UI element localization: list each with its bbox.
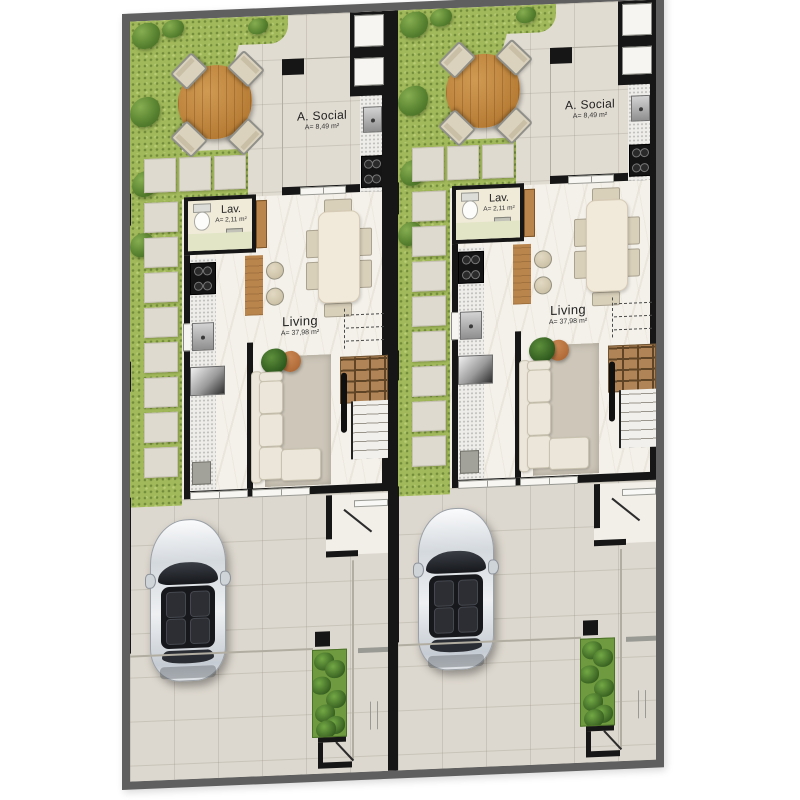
entry-door-leaf bbox=[354, 499, 388, 507]
paver-icon bbox=[144, 412, 178, 443]
stair-railing bbox=[609, 361, 615, 421]
staircase-lower bbox=[351, 400, 388, 460]
car-seat bbox=[458, 606, 478, 633]
leaf-icon bbox=[316, 720, 336, 738]
lav-room: Lav. A= 2,11 m² bbox=[452, 183, 524, 244]
paver-icon bbox=[179, 156, 211, 191]
gate-lines bbox=[370, 701, 378, 729]
paver-icon bbox=[412, 365, 446, 396]
cooktop-icon bbox=[190, 262, 216, 295]
car-mirror bbox=[413, 562, 424, 577]
cooktop-icon bbox=[458, 251, 484, 284]
paver-column bbox=[412, 191, 444, 478]
paver-icon bbox=[412, 435, 446, 466]
entry-door-leaf bbox=[622, 488, 656, 496]
car-rear-window bbox=[430, 638, 482, 653]
dining-table-icon bbox=[318, 210, 360, 304]
paver-icon bbox=[412, 400, 446, 431]
staircase-lower bbox=[619, 389, 656, 449]
laundry-sink-icon bbox=[631, 95, 650, 122]
party-wall bbox=[388, 10, 398, 770]
lav-door-leaf bbox=[524, 189, 535, 237]
living-room-label: Living A= 37,98 m² bbox=[250, 312, 350, 339]
leaf-icon bbox=[325, 660, 345, 679]
car-roof-glass bbox=[429, 574, 483, 638]
paver-icon bbox=[144, 272, 178, 303]
toilet-icon bbox=[462, 200, 478, 220]
service-cooktop-icon bbox=[361, 155, 384, 188]
car-seat bbox=[434, 580, 454, 607]
paver-icon bbox=[214, 155, 246, 190]
stair-railing bbox=[341, 373, 347, 433]
column bbox=[315, 631, 330, 647]
car-rear-window bbox=[162, 649, 214, 664]
paver-icon bbox=[144, 202, 178, 233]
car-seat bbox=[190, 590, 210, 617]
column bbox=[282, 58, 304, 75]
unit-1: A. Social A= 8,49 m² bbox=[130, 11, 388, 782]
appliance-icon bbox=[460, 450, 479, 474]
breakfast-bar bbox=[245, 255, 263, 316]
sofa-cushion bbox=[259, 413, 283, 447]
room-area: A= 2,11 m² bbox=[478, 204, 520, 213]
paver-row bbox=[398, 143, 516, 182]
car-seat bbox=[166, 591, 186, 618]
living-room-label: Living A= 37,98 m² bbox=[518, 301, 618, 328]
window bbox=[354, 14, 384, 47]
left-wall-segment bbox=[130, 362, 131, 392]
stair-void-dash bbox=[612, 297, 613, 337]
toilet-icon bbox=[194, 211, 210, 231]
car-roof-glass bbox=[161, 585, 215, 649]
sofa-cushion bbox=[527, 402, 551, 436]
social-room-label: A. Social A= 8,49 m² bbox=[548, 97, 632, 122]
sofa-cushion bbox=[259, 380, 283, 414]
dining-table-icon bbox=[586, 199, 628, 293]
lav-door-leaf bbox=[256, 200, 267, 248]
paver-row bbox=[130, 155, 248, 194]
paver-icon bbox=[447, 145, 479, 180]
service-cooktop-icon bbox=[629, 144, 652, 177]
floor-plan-canvas: A. Social A= 8,49 m² bbox=[0, 0, 800, 800]
paver-icon bbox=[412, 295, 446, 326]
entry-nook-wall bbox=[318, 743, 323, 765]
laundry-sink-icon bbox=[363, 106, 382, 133]
lav-room-label: Lav. A= 2,11 m² bbox=[478, 191, 520, 213]
site-plan-interior: A. Social A= 8,49 m² bbox=[130, 0, 656, 782]
sofa-cushion bbox=[527, 435, 551, 469]
paver-icon bbox=[144, 447, 178, 478]
paver-column bbox=[144, 202, 176, 489]
dining-chair-icon bbox=[358, 260, 372, 289]
car-seat bbox=[458, 579, 478, 606]
staircase-upper bbox=[608, 344, 656, 393]
window bbox=[354, 57, 384, 86]
lav-floor bbox=[188, 232, 252, 252]
left-wall-segment bbox=[130, 498, 131, 654]
car-windshield bbox=[158, 561, 218, 586]
paver-icon bbox=[412, 190, 446, 221]
sidewalk-line bbox=[620, 549, 622, 749]
car-windshield bbox=[426, 550, 486, 575]
paver-icon bbox=[144, 237, 178, 268]
staircase-upper bbox=[340, 355, 388, 404]
car-seat bbox=[190, 617, 210, 644]
car-icon bbox=[418, 506, 494, 671]
refrigerator-icon bbox=[190, 366, 225, 396]
planter-hedge bbox=[580, 637, 615, 726]
window bbox=[622, 3, 652, 36]
window bbox=[622, 46, 652, 75]
unit-2: A. Social A= 8,49 m² bbox=[398, 0, 656, 770]
dining-chair-icon bbox=[626, 216, 640, 245]
vestibule-wall bbox=[594, 484, 600, 528]
lav-room-label: Lav. A= 2,11 m² bbox=[210, 203, 252, 225]
car-icon bbox=[150, 518, 226, 683]
breakfast-bar bbox=[513, 244, 531, 305]
sofa-cushion bbox=[527, 369, 551, 403]
vestibule-wall bbox=[326, 495, 332, 539]
gate-lines bbox=[638, 690, 646, 718]
lav-room: Lav. A= 2,11 m² bbox=[184, 194, 256, 255]
left-wall-segment bbox=[130, 194, 131, 226]
lav-floor bbox=[456, 220, 520, 240]
kitchen-sink-icon bbox=[192, 322, 214, 351]
paver-icon bbox=[412, 330, 446, 361]
sofa-cushion bbox=[259, 446, 283, 480]
room-area: A= 2,11 m² bbox=[210, 215, 252, 224]
car-trunk bbox=[160, 665, 216, 679]
paver-icon bbox=[144, 307, 178, 338]
stair-void-dash bbox=[344, 309, 345, 349]
column bbox=[550, 47, 572, 64]
paver-icon bbox=[412, 225, 446, 256]
leaf-icon bbox=[584, 709, 604, 727]
site-plan: A. Social A= 8,49 m² bbox=[122, 0, 664, 790]
sidewalk-line bbox=[352, 560, 354, 760]
paver-icon bbox=[412, 147, 444, 182]
paver-icon bbox=[144, 158, 176, 193]
kitchen-sink-icon bbox=[460, 311, 482, 340]
leaf-icon bbox=[593, 648, 613, 667]
refrigerator-icon bbox=[458, 354, 493, 384]
sofa-chaise bbox=[549, 436, 589, 470]
car-seat bbox=[434, 607, 454, 634]
dining-chair-icon bbox=[358, 228, 372, 257]
entry-nook-wall bbox=[586, 731, 591, 753]
paver-icon bbox=[144, 377, 178, 408]
appliance-icon bbox=[192, 461, 211, 485]
car-seat bbox=[166, 618, 186, 645]
planter-hedge bbox=[312, 649, 347, 738]
sofa-chaise bbox=[281, 448, 321, 482]
social-room-label: A. Social A= 8,49 m² bbox=[280, 108, 364, 133]
paver-icon bbox=[412, 260, 446, 291]
paver-icon bbox=[482, 144, 514, 179]
car-mirror bbox=[145, 574, 156, 589]
column bbox=[583, 620, 598, 636]
dining-chair-icon bbox=[626, 248, 640, 277]
car-trunk bbox=[428, 654, 484, 668]
paver-icon bbox=[144, 342, 178, 373]
